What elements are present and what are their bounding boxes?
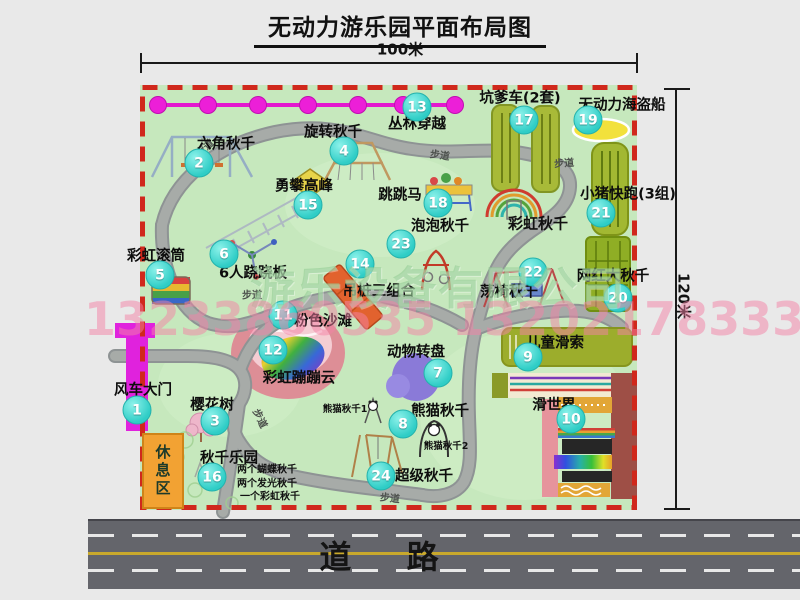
map-item-label-12: 彩虹蹦蹦云 bbox=[263, 367, 336, 388]
map-item-label-11: 粉色沙滩 bbox=[294, 310, 352, 331]
map-item-label-17: 坑爹车(2套) bbox=[479, 87, 560, 108]
map-item-number-24: 24 bbox=[367, 462, 396, 491]
map-item-number-1: 1 bbox=[123, 396, 152, 425]
map-item-number-10: 10 bbox=[557, 405, 586, 434]
map-item-label-24: 超级秋千 bbox=[395, 465, 453, 486]
map-item-number-6: 6 bbox=[210, 240, 239, 269]
walkway-label: 步道 bbox=[429, 145, 451, 163]
dimension-label-height: 120米 bbox=[674, 273, 695, 319]
map-item-number-23: 23 bbox=[387, 230, 416, 259]
road-label: 道 路 bbox=[319, 532, 460, 578]
road: 道 路 bbox=[88, 519, 800, 589]
map-item-number-7: 7 bbox=[424, 359, 453, 388]
map-item-label-14: 吊桩三组合 bbox=[343, 280, 416, 301]
map-item-number-22: 22 bbox=[519, 258, 548, 287]
map-item-label-20: 网红大秋千 bbox=[577, 265, 650, 286]
map-item-number-8: 8 bbox=[389, 410, 418, 439]
dimension-tick-right-bottom bbox=[664, 508, 690, 510]
map-item-label-18: 跳跳马 bbox=[378, 184, 422, 205]
map-item-number-20: 20 bbox=[604, 284, 633, 313]
map-item-number-12: 12 bbox=[259, 336, 288, 365]
map-item-label-8: 熊猫秋千 bbox=[411, 400, 469, 421]
walkway-label: 步道 bbox=[554, 154, 575, 170]
map-item-number-14: 14 bbox=[346, 250, 375, 279]
playground-plan-screenshot: 无动力游乐园平面布局图 100米 120米 bbox=[0, 0, 800, 600]
map-item-number-13: 13 bbox=[403, 93, 432, 122]
dimension-tick-top-left bbox=[140, 53, 142, 73]
map-item-label-4: 旋转秋千 bbox=[304, 121, 362, 142]
map-item-number-21: 21 bbox=[587, 199, 616, 228]
map-extra-label: 两个蝴蝶秋千 bbox=[237, 461, 297, 476]
map-item-number-17: 17 bbox=[510, 106, 539, 135]
bubble-swing-icon bbox=[422, 251, 450, 290]
rest-area-box: 休息区 bbox=[142, 433, 184, 509]
map-item-label-23: 泡泡秋千 bbox=[411, 215, 469, 236]
map-item-number-15: 15 bbox=[294, 191, 323, 220]
walkway-label: 步道 bbox=[242, 287, 262, 302]
map-extra-label: 熊猫秋千1 bbox=[323, 401, 368, 415]
map-extra-label: 熊猫秋千2 bbox=[424, 438, 469, 452]
map-item-number-5: 5 bbox=[146, 261, 175, 290]
map-extra-label: 彩虹秋千 bbox=[508, 213, 568, 234]
map-extra-label: 一个彩虹秋千 bbox=[240, 488, 300, 503]
map-item-number-9: 9 bbox=[514, 343, 543, 372]
dimension-tick-right-top bbox=[664, 88, 690, 90]
map-item-number-19: 19 bbox=[574, 106, 603, 135]
map-item-number-4: 4 bbox=[330, 137, 359, 166]
park-map: 休息区 风车大门1六角秋千2樱花树3旋转秋千4彩虹滚筒56人跷跷板6动物转盘7熊… bbox=[140, 85, 637, 510]
map-item-number-18: 18 bbox=[424, 189, 453, 218]
map-item-number-16: 16 bbox=[198, 463, 227, 492]
map-item-number-3: 3 bbox=[201, 407, 230, 436]
walkway-label: 步道 bbox=[379, 488, 400, 505]
map-item-number-2: 2 bbox=[185, 149, 214, 178]
dimension-line-top bbox=[140, 62, 638, 64]
dimension-tick-top-right bbox=[636, 53, 638, 73]
map-item-number-11: 11 bbox=[269, 301, 298, 330]
page-title: 无动力游乐园平面布局图 bbox=[254, 8, 546, 48]
